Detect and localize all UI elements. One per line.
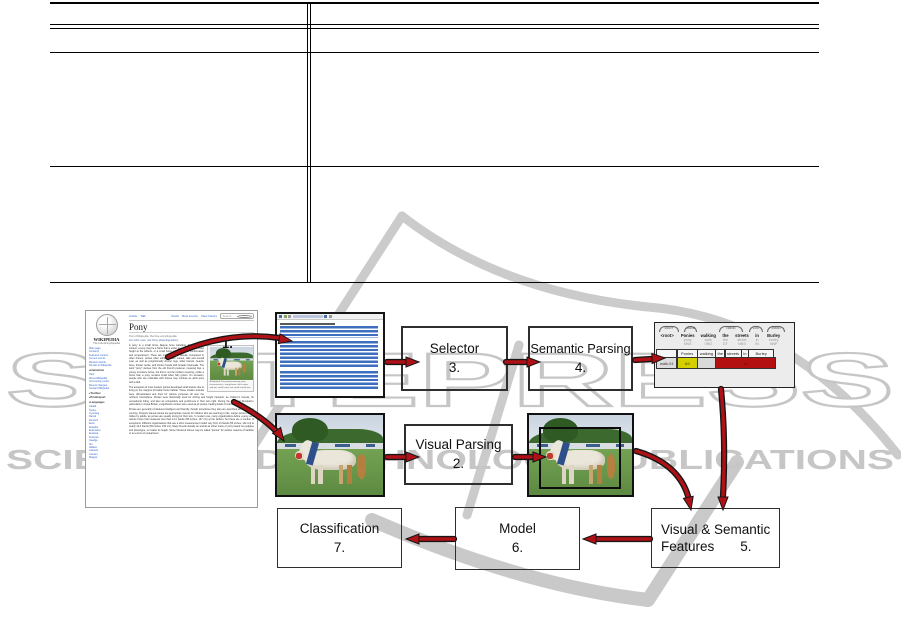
wikipedia-tabs: ArticleTalk ReadView sourceView history …: [129, 313, 254, 321]
article-subtitle: From Wikipedia, the free encyclopedia: [129, 334, 254, 338]
srl-a0-cell: A0: [677, 357, 698, 369]
srl-data-row: walk.01 A0 A1: [657, 358, 779, 369]
search-placeholder: Search: [223, 314, 236, 318]
arc-label: LOC: [749, 326, 763, 332]
pony-photo-art: [277, 415, 383, 495]
detection-bounding-box: [539, 427, 621, 489]
pony-photo-large: [275, 413, 385, 497]
wikipedia-sidebar: WIKIPEDIA The Free Encyclopedia Main pag…: [86, 311, 126, 507]
tab: View history: [201, 314, 217, 318]
tab: Talk: [140, 314, 145, 318]
srl-predicate-cell: walk.01: [656, 357, 677, 369]
pony-photo-small: [210, 347, 253, 380]
search-icon: [237, 315, 252, 318]
features-number: 5.: [740, 540, 751, 554]
article-title: Pony: [129, 322, 254, 333]
features-label-line1: Visual & Semantic: [661, 523, 770, 537]
selector-label: Selector: [430, 342, 480, 356]
step-1-label: 1.: [222, 336, 233, 351]
tabs-left: ArticleTalk: [129, 314, 146, 318]
sidebar-link: Contact Wikipedia: [89, 387, 124, 390]
wikipedia-tagline: The Free Encyclopedia: [89, 342, 124, 345]
parse-pos: DT: [719, 342, 731, 346]
article-hatnote: For other uses, see Pony (disambiguation…: [129, 339, 254, 342]
selector-box: Selector 3.: [401, 326, 508, 391]
sidebar-link: Donate to Wikipedia: [89, 364, 124, 367]
article-thumbnail: A Highland Pony demonstrating pony chara…: [207, 345, 254, 393]
sidebar-links-languages: CatalàČeskyCymraegDanskDeutschEestiEspañ…: [89, 405, 124, 460]
parse-pos: IN: [752, 342, 761, 346]
visual-parsing-box: Visual Parsing 2.: [404, 424, 513, 485]
table-rule: [50, 24, 819, 25]
article-paragraph: Ponies are generally considered intellig…: [129, 408, 254, 435]
parse-pos: NNP: [763, 342, 785, 346]
arc-label: NMOD: [719, 326, 743, 332]
srl-a1-cell: A1: [715, 357, 776, 369]
parse-pos-row: NNSVBGDTNNSINNNP: [657, 342, 792, 346]
arc-label: ROOT: [659, 326, 679, 332]
tabs-right: ReadView sourceView history: [171, 314, 217, 318]
arc-label: AMOD: [684, 326, 697, 332]
sidebar-links-main: Main pageContentsFeatured contentCurrent…: [89, 347, 124, 367]
classification-label: Classification: [300, 522, 380, 536]
srl-table: Ponies walking the streets in Burley wal…: [657, 350, 779, 370]
wikipedia-article: ArticleTalk ReadView sourceView history …: [126, 311, 257, 507]
parse-pos: NNS: [733, 342, 752, 346]
article-body: A Highland Pony demonstrating pony chara…: [129, 344, 254, 436]
wikipedia-logo: [96, 314, 118, 336]
search-box: Search: [220, 313, 254, 319]
model-number: 6.: [512, 541, 523, 555]
features-box: Visual & Semantic Features 5.: [651, 508, 780, 568]
pony-photo-detected: [527, 413, 634, 497]
classification-number: 7.: [334, 541, 345, 555]
table-column-rule: [310, 2, 311, 283]
arc-label: PMOD: [767, 326, 785, 332]
sidebar-links-interaction: HelpAbout WikipediaCommunity portalRecen…: [89, 373, 124, 390]
semantic-parsing-box: Semantic Parsing 4.: [528, 326, 633, 391]
parse-pos: NNS: [678, 342, 697, 346]
sidebar-link: Magyar: [89, 456, 124, 459]
parse-pos: [657, 342, 677, 346]
dependency-arcs: ROOT AMOD NMOD LOC PMOD: [657, 325, 792, 333]
thumbnail-caption: A Highland Pony demonstrating pony chara…: [210, 381, 252, 390]
tab: Article: [129, 314, 137, 318]
semantic-parsing-number: 4.: [575, 361, 586, 375]
table-rule: [50, 28, 819, 29]
semantic-parsing-label: Semantic Parsing: [530, 342, 630, 356]
table-rule: [50, 52, 819, 53]
table-rule: [50, 2, 819, 4]
visual-parsing-number: 2.: [453, 457, 464, 471]
table-rule: [50, 166, 819, 168]
paper-page: SCITEPRESS SCIENCE AND TECHNOLOGY PUBLIC…: [0, 0, 901, 640]
selected-text-screenshot: [275, 312, 385, 398]
table-column-rule: [307, 2, 308, 283]
parse-pos: VBG: [698, 342, 718, 346]
selector-number: 3.: [449, 361, 460, 375]
model-box: Model 6.: [455, 507, 580, 570]
tab: Read: [171, 314, 178, 318]
selected-text-lines: [277, 320, 383, 390]
table-rule: [50, 282, 819, 284]
features-label-line2: Features: [661, 540, 714, 554]
srl-empty-cell: [697, 357, 716, 369]
model-label: Model: [499, 522, 536, 536]
tab: View source: [182, 314, 198, 318]
pony-thumbnail-image: [210, 347, 253, 380]
classification-box: Classification 7.: [277, 508, 402, 568]
semantic-parse-panel: ROOT AMOD NMOD LOC PMOD <root>Ponieswalk…: [654, 322, 795, 388]
visual-parsing-label: Visual Parsing: [415, 438, 501, 452]
